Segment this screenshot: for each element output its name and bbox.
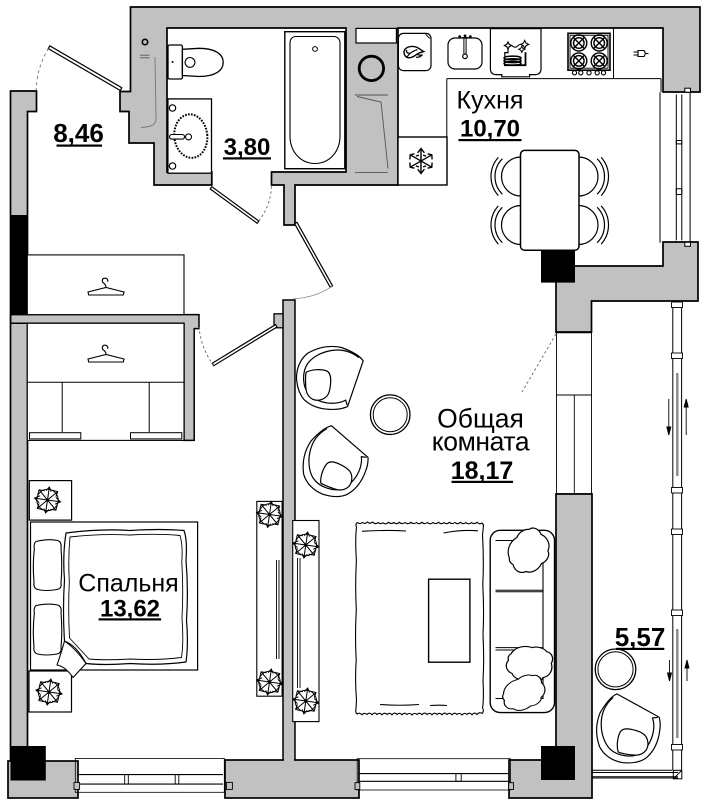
svg-text:3,80: 3,80 [224,134,271,161]
svg-text:8,46: 8,46 [53,118,104,148]
svg-text:Кухня: Кухня [457,87,524,115]
svg-text:Спальня: Спальня [78,569,178,597]
svg-text:5,57: 5,57 [615,622,666,652]
svg-text:10,70: 10,70 [460,116,520,143]
svg-text:комната: комната [432,427,530,457]
